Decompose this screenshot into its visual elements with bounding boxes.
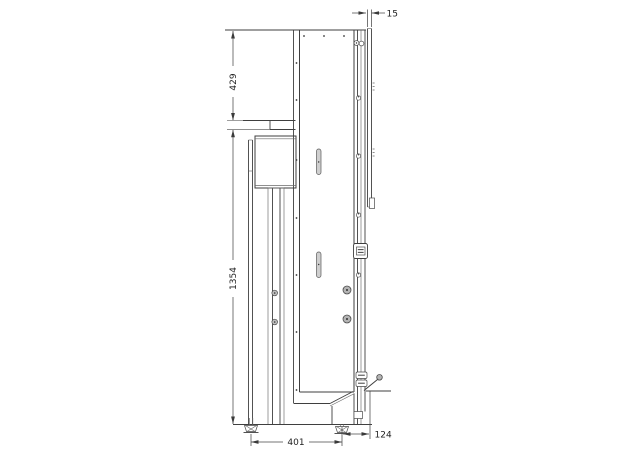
dim-foot-spacing: 401 — [251, 427, 342, 448]
screw-dot — [343, 35, 345, 37]
dim-plate-thickness: 15 — [352, 10, 398, 28]
support-columns — [268, 188, 284, 424]
screw-dot — [303, 35, 305, 37]
motor-box — [255, 136, 296, 188]
main-panel — [294, 30, 355, 403]
bolt-icon — [359, 41, 364, 46]
dim-top-section-height: 429 — [229, 31, 239, 121]
upper-bracket — [227, 121, 296, 130]
clamp-block — [354, 244, 368, 259]
thin-plate — [368, 29, 375, 209]
dim-label-124: 124 — [375, 431, 392, 441]
dim-label-429: 429 — [229, 73, 239, 90]
panel-bolts — [343, 286, 351, 323]
drawing-canvas: 15 429 1354 401 — [0, 0, 624, 460]
dim-main-height: 1354 — [229, 130, 239, 424]
dim-label-401: 401 — [287, 438, 304, 448]
screw-dot — [296, 331, 298, 333]
machine-outline — [225, 29, 391, 434]
release-lever — [364, 375, 391, 392]
base-assembly — [233, 392, 372, 425]
right-column — [354, 30, 368, 424]
front-leg — [249, 140, 253, 424]
screw-dot — [296, 99, 298, 101]
screw-dot — [296, 62, 298, 64]
dim-right-offset: 124 — [343, 392, 392, 441]
plate-end-hook — [370, 198, 375, 209]
screw-dot — [296, 274, 298, 276]
dimension-annotations: 15 429 1354 401 — [229, 10, 398, 449]
screw-dot — [296, 389, 298, 391]
technical-drawing: 15 429 1354 401 — [0, 0, 624, 460]
screw-dot — [323, 35, 325, 37]
screw-dot — [296, 217, 298, 219]
lever-knob — [377, 375, 383, 381]
dim-label-1354: 1354 — [229, 267, 239, 290]
dim-label-15: 15 — [387, 10, 398, 20]
leveling-foot-left — [244, 418, 259, 433]
base-step — [354, 412, 363, 419]
